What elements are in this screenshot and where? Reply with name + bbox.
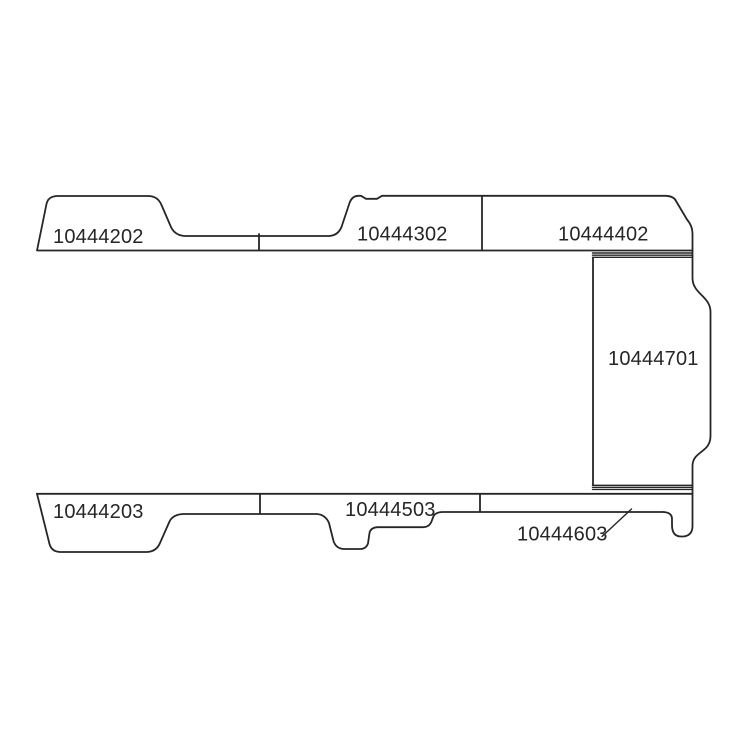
part-labels: 10444202 10444302 10444402 10444701 1044…: [53, 224, 699, 546]
van-floor-parts-diagram: 10444202 10444302 10444402 10444701 1044…: [0, 0, 750, 750]
joint-band-top: [593, 253, 693, 257]
label-bottom-middle-panel: 10444503: [345, 499, 436, 521]
joint-band-bottom: [593, 485, 693, 489]
label-top-left-panel: 10444202: [53, 226, 144, 248]
label-top-middle-panel: 10444302: [357, 224, 448, 246]
label-right-side-panel: 10444701: [608, 348, 699, 370]
label-bottom-left-panel: 10444203: [53, 501, 144, 523]
label-top-right-panel: 10444402: [558, 224, 649, 246]
label-bottom-right-panel: 10444603: [517, 524, 608, 546]
parts-diagram-canvas: 10444202 10444302 10444402 10444701 1044…: [0, 0, 750, 750]
